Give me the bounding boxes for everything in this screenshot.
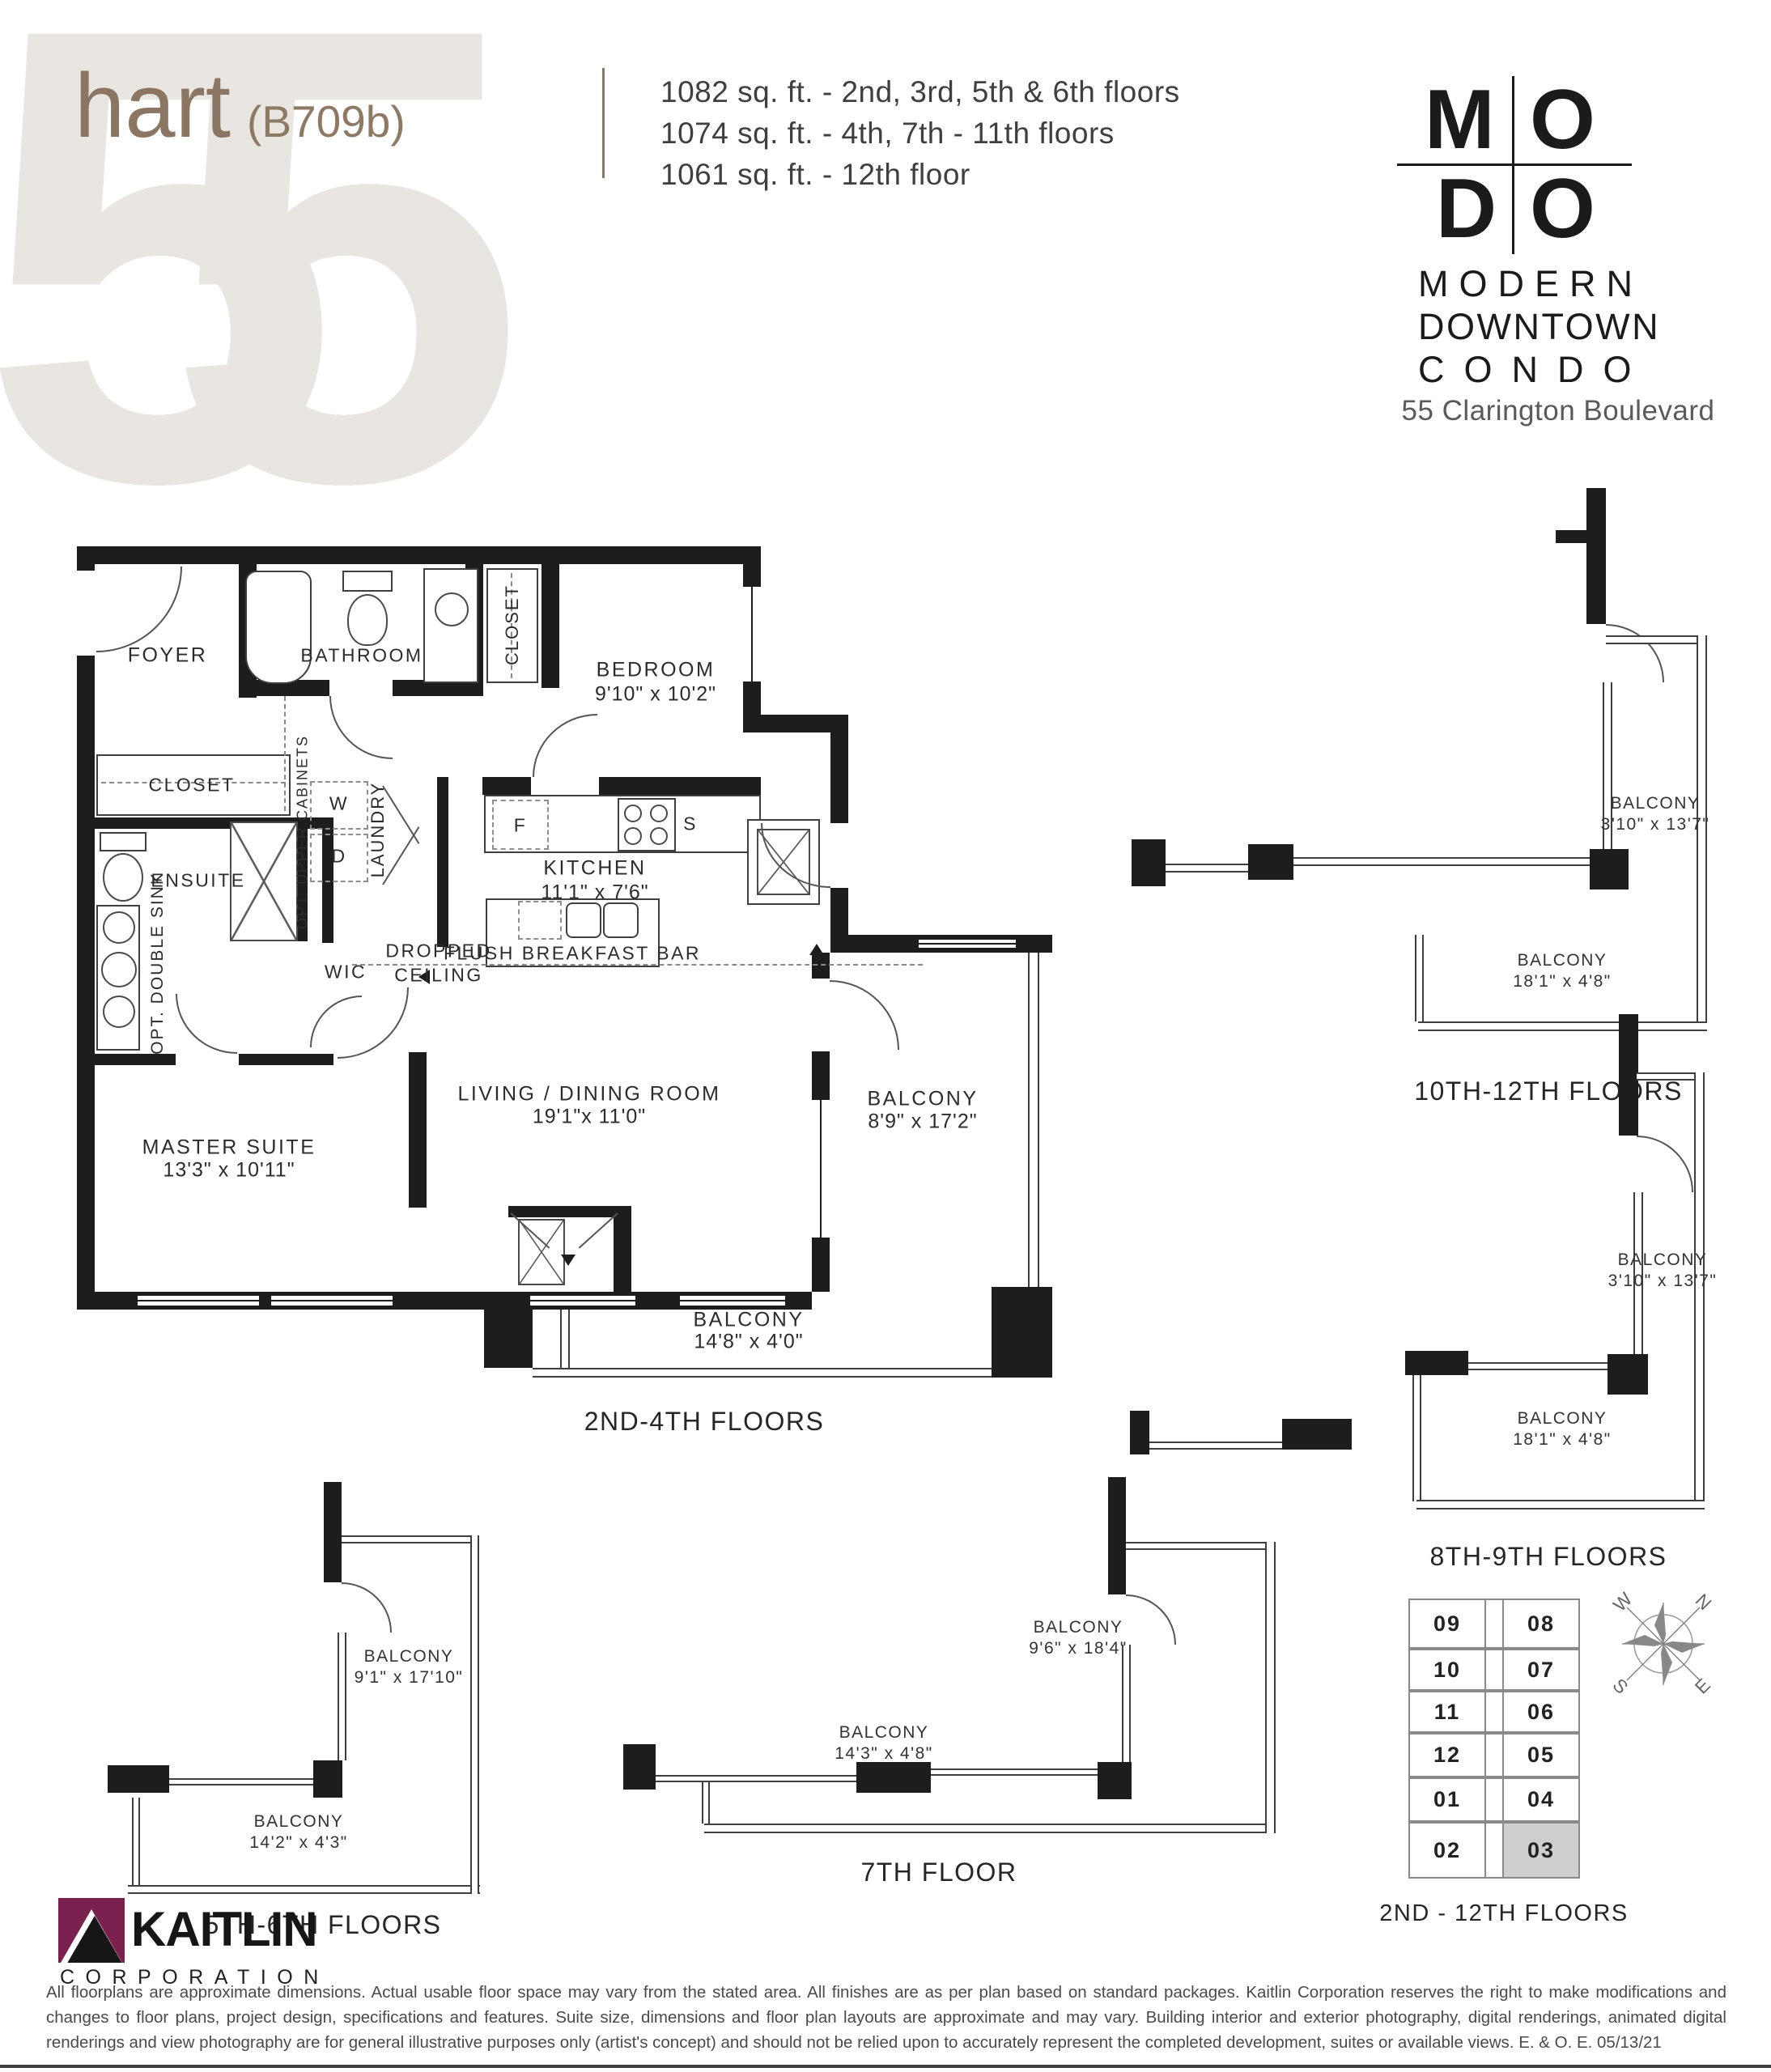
dims-balcony: 14'8" x 4'0"	[694, 1331, 803, 1354]
room-dims-kitchen: 11'1" x 7'6"	[541, 881, 648, 905]
wall	[830, 732, 848, 823]
balcony-rail	[1468, 1362, 1607, 1370]
keyplan-row: 11 06	[1408, 1691, 1580, 1733]
logo-word: MODERN	[1418, 262, 1609, 305]
wall	[1405, 1351, 1468, 1375]
balcony-rail	[1122, 1645, 1131, 1762]
dims-balcony: 18'1" x 4'8"	[1513, 972, 1612, 991]
bathtub	[245, 571, 312, 684]
window	[743, 587, 761, 681]
burner	[650, 805, 668, 822]
sqft-line: 1061 sq. ft. - 12th floor	[660, 154, 1180, 195]
toilet	[347, 594, 388, 646]
balcony-rail	[342, 1535, 470, 1543]
wall	[508, 1206, 625, 1217]
wall	[812, 953, 830, 979]
balcony-rail	[656, 1775, 856, 1782]
floorplan-sheet: 55 hart (B709b) 1082 sq. ft. - 2nd, 3rd,…	[0, 0, 1771, 2072]
logo-crosshair-horizontal	[1397, 163, 1632, 166]
door-arc	[533, 714, 597, 777]
door-arc	[1126, 1594, 1176, 1645]
door-arc	[1606, 624, 1664, 682]
wall	[812, 1238, 830, 1292]
balcony-rail	[1164, 864, 1248, 873]
logo-letter: O	[1530, 79, 1595, 160]
balcony-rail	[169, 1778, 313, 1785]
title-divider	[602, 68, 605, 178]
balcony-rail	[560, 1310, 570, 1368]
balcony-corner-block	[992, 1287, 1052, 1378]
wall	[623, 1744, 656, 1790]
variant-caption: 7TH FLOOR	[860, 1858, 1017, 1887]
keyplan-row: 12 05	[1408, 1733, 1580, 1777]
sink	[103, 911, 135, 944]
balcony-rail	[1412, 1375, 1421, 1501]
keyplan-row: 01 04	[1408, 1777, 1580, 1822]
balcony-rail	[1028, 953, 1039, 1287]
dims-balcony: 9'1" x 17'10"	[355, 1668, 464, 1688]
dims-balcony: 9'6" x 18'4"	[1029, 1639, 1128, 1658]
balcony-corner-block	[484, 1310, 533, 1368]
label-balcony: BALCONY	[1611, 794, 1701, 813]
main-floorplan: FOYER BATHROOM CLOSET BEDROOM 9'10" x 10…	[77, 534, 1056, 1408]
toilet-tank	[100, 832, 147, 851]
brand-name: KAITLIN	[131, 1901, 317, 1957]
label-dryer: D	[331, 846, 346, 868]
label-opt-double-sink: OPT. DOUBLE SINK	[148, 872, 168, 1055]
room-label-laundry: LAUNDRY	[367, 782, 389, 878]
wall	[77, 656, 95, 1310]
unit-cell: 04	[1502, 1777, 1580, 1822]
kitchen-sink	[603, 902, 639, 938]
label-balcony: BALCONY	[364, 1647, 454, 1667]
plan-code: (B709b)	[247, 96, 406, 147]
keyplan-row: 02 03	[1408, 1822, 1580, 1879]
room-dims-living: 19'1"x 11'0"	[533, 1106, 646, 1129]
unit-cell: 06	[1502, 1691, 1580, 1733]
dims-balcony: 14'2" x 4'3"	[249, 1833, 348, 1853]
dropped-ceiling-line	[284, 696, 286, 811]
wall	[437, 777, 448, 947]
dims-balcony: 8'9" x 17'2"	[868, 1110, 977, 1134]
unit-cell: 05	[1502, 1733, 1580, 1777]
label-washer: W	[329, 793, 349, 815]
burner	[650, 827, 668, 845]
compass-rose: W N S E	[1611, 1591, 1716, 1696]
room-dims-master: 13'3" x 10'11"	[163, 1159, 295, 1182]
kaitlin-logo-mark	[58, 1898, 125, 1963]
balcony-rail	[702, 1782, 710, 1824]
kaitlin-logo: KAITLIN CORPORATION	[58, 1898, 317, 1979]
balcony-rail	[1606, 635, 1698, 644]
marker-icon	[809, 944, 824, 955]
project-address: 55 Clarington Boulevard	[1376, 395, 1740, 427]
marker-icon	[561, 1255, 575, 1266]
balcony-rail	[338, 1633, 346, 1760]
room-label-living: LIVING / DINING ROOM	[457, 1083, 720, 1106]
burner	[624, 805, 642, 822]
door-arc	[1637, 1136, 1693, 1192]
balcony-rail	[132, 1798, 140, 1885]
wall	[324, 1482, 342, 1582]
wall	[239, 1054, 333, 1065]
label-opt-upper-cabinets: OPT. UPPER CABINETS	[295, 735, 312, 929]
sqft-list: 1082 sq. ft. - 2nd, 3rd, 5th & 6th floor…	[660, 71, 1180, 195]
sink	[435, 592, 469, 626]
dims-balcony: 3'10" x 13'7"	[1608, 1272, 1718, 1291]
window	[812, 1100, 830, 1238]
wall	[108, 1765, 169, 1793]
label-balcony: BALCONY	[694, 1309, 805, 1332]
logo-letter: D	[1436, 168, 1497, 249]
room-label-kitchen: KITCHEN	[543, 857, 646, 881]
room-label-bathroom: BATHROOM	[300, 645, 423, 667]
logo-letter: O	[1530, 168, 1595, 249]
balcony-rail	[470, 1535, 479, 1894]
door-arc	[329, 696, 393, 759]
corridor	[1486, 1649, 1502, 1691]
label-balcony: BALCONY	[868, 1088, 979, 1111]
wall	[1248, 844, 1293, 880]
door-arc	[342, 1582, 392, 1633]
room-label-wic: WIC	[325, 962, 367, 983]
unit-cell: 12	[1408, 1733, 1486, 1777]
label-stove: S	[683, 813, 698, 835]
dims-balcony: 3'10" x 13'7"	[1601, 815, 1710, 834]
wall	[614, 1206, 631, 1292]
unit-cell: 11	[1408, 1691, 1486, 1733]
label-balcony: BALCONY	[1618, 1250, 1708, 1270]
wall	[1108, 1477, 1126, 1594]
keyplan-caption: 2ND - 12TH FLOORS	[1379, 1900, 1629, 1927]
label-balcony: BALCONY	[1034, 1618, 1123, 1637]
label-balcony: BALCONY	[839, 1723, 929, 1743]
door-arc	[830, 980, 899, 1050]
wall	[77, 546, 95, 571]
unit-cell: 09	[1408, 1599, 1486, 1649]
wall	[1130, 1411, 1149, 1454]
balcony-rail	[1694, 1072, 1705, 1509]
balcony-rail	[1265, 1542, 1276, 1833]
sqft-line: 1074 sq. ft. - 4th, 7th - 11th floors	[660, 113, 1180, 154]
label-fridge: F	[514, 815, 528, 837]
corridor	[1486, 1777, 1502, 1822]
wall	[1132, 839, 1166, 886]
corridor	[1486, 1822, 1502, 1879]
balcony-rail	[1149, 1441, 1282, 1450]
dims-balcony: 18'1" x 4'8"	[1513, 1430, 1612, 1450]
master-closet	[518, 1219, 565, 1285]
label-dropped-ceiling: CEILING	[394, 965, 483, 987]
balcony-rail	[1126, 1542, 1265, 1550]
plan-title: hart (B709b)	[74, 58, 406, 154]
variant-plan-7th: BALCONY 9'6" x 18'4" BALCONY 14'3" x 4'8…	[623, 1477, 1279, 1930]
wall	[599, 777, 761, 795]
main-plan-caption: 2ND-4TH FLOORS	[584, 1407, 825, 1437]
wall	[95, 1054, 176, 1065]
wall	[856, 1762, 931, 1793]
label-balcony: BALCONY	[1518, 1409, 1607, 1429]
closet-door	[579, 1212, 618, 1248]
window	[138, 1296, 259, 1306]
unit-cell: 02	[1408, 1822, 1486, 1879]
dims-balcony: 14'3" x 4'8"	[835, 1744, 933, 1764]
burner	[624, 827, 642, 845]
balcony-rail	[1291, 857, 1590, 866]
window	[919, 940, 1016, 948]
wall	[409, 1052, 427, 1208]
keyplan-row: 10 07	[1408, 1649, 1580, 1691]
wall	[1282, 1419, 1352, 1450]
balcony-corner-block	[1098, 1762, 1132, 1799]
wall	[1619, 1014, 1638, 1136]
building-keyplan: 09 08 10 07 11 06 12 05 01 04 02 03	[1408, 1599, 1580, 1879]
window	[680, 1296, 785, 1306]
sink	[101, 952, 137, 987]
unit-cell: 07	[1502, 1649, 1580, 1691]
room-label-closet: CLOSET	[502, 584, 523, 665]
label-breakfast-bar: FLUSH BREAKFAST BAR	[444, 943, 701, 965]
unit-cell: 08	[1502, 1599, 1580, 1649]
toilet	[103, 853, 143, 902]
balcony-rail	[128, 1885, 480, 1894]
mountain-icon	[66, 1916, 124, 1963]
keyplan-row: 09 08	[1408, 1599, 1580, 1649]
logo-word: CONDO	[1418, 348, 1609, 391]
wall	[812, 1051, 830, 1100]
logo-letter: M	[1425, 79, 1495, 160]
wall	[743, 564, 761, 587]
balcony-rail	[704, 1824, 1276, 1833]
room-label-foyer: FOYER	[128, 644, 208, 668]
plan-name: hart	[74, 58, 231, 154]
label-balcony: BALCONY	[1518, 951, 1607, 970]
room-label-master: MASTER SUITE	[142, 1136, 316, 1160]
kitchen-sink	[566, 902, 601, 938]
wall	[743, 715, 848, 732]
sink	[103, 996, 135, 1028]
toilet-tank	[342, 571, 393, 592]
balcony-corner-block	[1590, 849, 1629, 890]
wall	[541, 564, 559, 688]
balcony-rail	[533, 1368, 992, 1378]
wall	[830, 888, 848, 936]
dishwasher	[518, 901, 562, 940]
door-arc	[176, 994, 237, 1054]
unit-cell: 10	[1408, 1649, 1486, 1691]
unit-cell: 01	[1408, 1777, 1486, 1822]
corridor	[1486, 1733, 1502, 1777]
balcony-corner-block	[1607, 1354, 1648, 1395]
window	[530, 1296, 635, 1306]
corridor	[1486, 1599, 1502, 1649]
disclaimer-text: All floorplans are approximate dimension…	[46, 1980, 1726, 2055]
modo-logo-grid: M O D O	[1418, 79, 1609, 251]
door-arc	[310, 996, 362, 1047]
logo-word: DOWNTOWN	[1418, 305, 1609, 348]
balcony-corner-block	[313, 1760, 342, 1798]
variant-caption: 8TH-9TH FLOORS	[1429, 1542, 1667, 1572]
room-label-bedroom: BEDROOM	[597, 659, 716, 682]
sqft-line: 1082 sq. ft. - 2nd, 3rd, 5th & 6th floor…	[660, 71, 1180, 113]
room-dims-bedroom: 9'10" x 10'2"	[595, 683, 716, 707]
balcony-rail	[1416, 1500, 1705, 1509]
door-arc	[96, 567, 182, 652]
label-balcony: BALCONY	[254, 1812, 344, 1832]
balcony-rail	[1637, 1072, 1700, 1081]
wall	[1556, 530, 1588, 543]
corridor	[1486, 1691, 1502, 1733]
wall	[482, 777, 531, 795]
wall	[77, 546, 761, 564]
page-bottom-rule	[0, 2065, 1771, 2068]
modo-logo: M O D O MODERN DOWNTOWN CONDO	[1418, 79, 1609, 391]
unit-cell-highlighted: 03	[1502, 1822, 1580, 1879]
wall	[1586, 488, 1606, 624]
variant-plan-5th-6th: BALCONY 9'1" x 17'10" BALCONY 14'2" x 4'…	[61, 1477, 563, 1930]
window	[271, 1296, 393, 1306]
room-label-closet: CLOSET	[148, 775, 235, 796]
